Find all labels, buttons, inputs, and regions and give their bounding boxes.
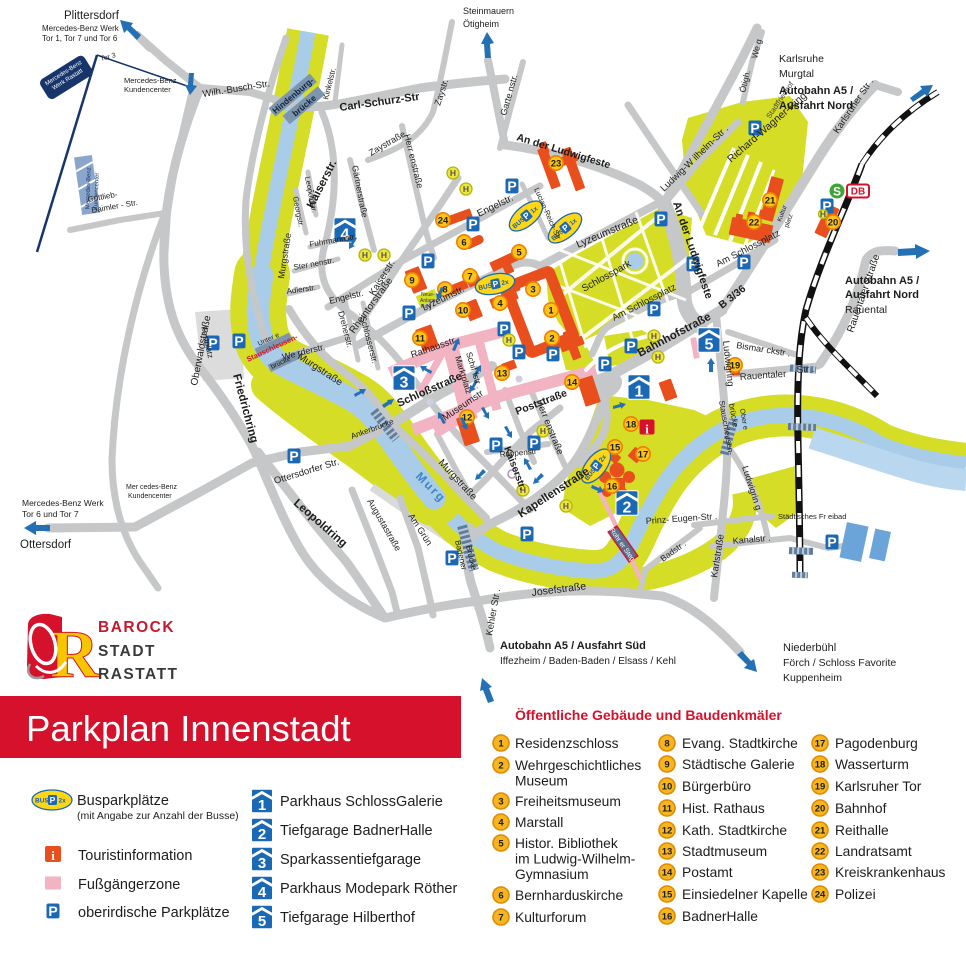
svg-text:Karlsruhe: Karlsruhe (779, 53, 824, 65)
svg-text:Gymnasium: Gymnasium (515, 867, 589, 882)
svg-text:9: 9 (664, 759, 669, 770)
svg-text:14: 14 (567, 377, 578, 388)
svg-text:Marstall: Marstall (515, 815, 563, 830)
svg-text:17: 17 (815, 738, 826, 749)
svg-text:Niederbühl: Niederbühl (783, 642, 836, 654)
svg-text:Bahnhof: Bahnhof (835, 801, 887, 816)
svg-text:Ausfahrt Nord: Ausfahrt Nord (779, 100, 853, 112)
svg-text:Tor 6 und Tor 7: Tor 6 und Tor 7 (22, 509, 79, 519)
svg-text:16: 16 (662, 911, 673, 922)
svg-text:20: 20 (828, 217, 839, 228)
svg-text:8: 8 (664, 738, 669, 749)
svg-text:P: P (600, 356, 609, 372)
svg-text:P: P (514, 344, 523, 360)
svg-text:BAROCK: BAROCK (98, 619, 175, 636)
svg-text:Mercedes-Benz Werk: Mercedes-Benz Werk (22, 498, 104, 508)
svg-text:Stadtmuseum: Stadtmuseum (682, 844, 767, 859)
svg-text:S: S (833, 185, 841, 199)
svg-text:18: 18 (815, 759, 826, 770)
svg-text:BadnerHalle: BadnerHalle (682, 909, 758, 924)
svg-text:Kundencenter: Kundencenter (124, 85, 171, 94)
svg-text:3: 3 (530, 284, 535, 295)
svg-text:Str .: Str . (796, 364, 814, 376)
svg-text:7: 7 (467, 271, 472, 282)
svg-text:Postamt: Postamt (682, 865, 733, 880)
svg-text:22: 22 (815, 846, 826, 857)
svg-text:Mercedes-Benz Werk: Mercedes-Benz Werk (42, 24, 120, 33)
svg-text:P: P (404, 305, 413, 321)
svg-text:14: 14 (662, 867, 673, 878)
svg-text:4: 4 (258, 884, 267, 901)
svg-text:Mercedes-Benz: Mercedes-Benz (124, 76, 177, 85)
svg-text:Histor. Bibliothek: Histor. Bibliothek (515, 836, 618, 851)
svg-text:Parkhaus Modepark Röther: Parkhaus Modepark Röther (280, 881, 457, 897)
svg-text:10: 10 (458, 305, 469, 316)
svg-text:2: 2 (549, 333, 554, 344)
svg-text:Reithalle: Reithalle (835, 823, 889, 838)
svg-text:im Ludwig-Wilhelm-: im Ludwig-Wilhelm- (515, 852, 635, 867)
svg-text:RASTATT: RASTATT (98, 666, 179, 683)
svg-text:Murgtal: Murgtal (779, 68, 814, 80)
svg-text:21: 21 (765, 195, 776, 206)
svg-text:5: 5 (705, 336, 714, 353)
svg-text:Städtische Galerie: Städtische Galerie (682, 757, 795, 772)
svg-text:2: 2 (258, 826, 266, 843)
svg-text:Touristinformation: Touristinformation (78, 848, 192, 864)
svg-text:Karlsruher Tor: Karlsruher Tor (835, 779, 922, 794)
svg-text:Rauental: Rauental (845, 304, 887, 316)
svg-text:15: 15 (610, 442, 621, 453)
svg-text:Museum: Museum (515, 774, 568, 789)
svg-text:23: 23 (551, 158, 562, 169)
svg-text:Autobahn A5 /: Autobahn A5 / (779, 85, 853, 97)
svg-text:Wehrgeschichtliches: Wehrgeschichtliches (515, 758, 641, 773)
svg-text:Parkplan Innenstadt: Parkplan Innenstadt (26, 708, 351, 749)
svg-text:P: P (447, 550, 456, 566)
svg-text:6: 6 (461, 237, 466, 248)
svg-text:Iffezheim / Baden-Baden / Elsa: Iffezheim / Baden-Baden / Elsass / Kehl (500, 656, 676, 667)
svg-text:2: 2 (623, 499, 632, 516)
svg-text:11: 11 (415, 333, 426, 344)
svg-text:Autobahn A5 /: Autobahn A5 / (845, 275, 919, 287)
svg-text:Städtisches Fr eibad: Städtisches Fr eibad (778, 512, 846, 521)
svg-text:P: P (626, 338, 635, 354)
svg-text:23: 23 (815, 867, 826, 878)
svg-text:Kreiskrankenhaus: Kreiskrankenhaus (835, 865, 946, 880)
svg-text:18: 18 (626, 419, 637, 430)
svg-text:P: P (827, 534, 836, 550)
svg-text:20: 20 (815, 803, 826, 814)
svg-text:Mer cedes-Benz: Mer cedes-Benz (126, 484, 177, 491)
svg-text:1: 1 (498, 738, 504, 749)
svg-text:2: 2 (498, 760, 503, 771)
svg-text:10: 10 (662, 781, 673, 792)
svg-text:19: 19 (815, 781, 826, 792)
svg-text:13: 13 (662, 846, 673, 857)
svg-text:22: 22 (749, 217, 760, 228)
svg-text:Freiheitsmuseum: Freiheitsmuseum (515, 794, 621, 809)
svg-text:Residenzschloss: Residenzschloss (515, 736, 619, 751)
svg-text:P: P (50, 795, 56, 805)
svg-text:13: 13 (497, 368, 508, 379)
svg-text:i: i (645, 422, 649, 437)
svg-text:H: H (506, 335, 512, 345)
svg-text:15: 15 (662, 889, 673, 900)
svg-text:11: 11 (662, 803, 673, 814)
svg-text:5: 5 (516, 247, 522, 258)
svg-text:H: H (362, 250, 368, 260)
svg-text:21: 21 (815, 825, 826, 836)
svg-text:Wasserturm: Wasserturm (835, 757, 909, 772)
svg-text:4: 4 (498, 817, 504, 828)
svg-text:3: 3 (258, 855, 266, 872)
svg-text:16: 16 (607, 481, 618, 492)
svg-text:5: 5 (498, 838, 504, 849)
svg-text:Polizei: Polizei (835, 887, 876, 902)
svg-text:Busparkplätze: Busparkplätze (77, 793, 169, 809)
svg-text:Tor 1, Tor 7 und Tor 6: Tor 1, Tor 7 und Tor 6 (42, 34, 118, 43)
svg-text:Evang. Stadtkirche: Evang. Stadtkirche (682, 736, 798, 751)
svg-text:P: P (423, 253, 432, 269)
svg-text:H: H (820, 209, 826, 219)
svg-text:STADT: STADT (98, 643, 156, 660)
svg-text:P: P (48, 903, 57, 919)
svg-text:9: 9 (409, 275, 414, 286)
svg-text:1: 1 (258, 797, 266, 814)
svg-text:Tiefgarage BadnerHalle: Tiefgarage BadnerHalle (280, 823, 433, 839)
svg-text:R: R (50, 616, 100, 692)
svg-text:P: P (468, 216, 477, 232)
svg-text:24: 24 (438, 215, 449, 226)
svg-text:Kuppenheim: Kuppenheim (783, 672, 842, 684)
svg-text:Autobahn A5 / Ausfahrt Süd: Autobahn A5 / Ausfahrt Süd (500, 640, 646, 652)
svg-text:DB: DB (851, 187, 865, 198)
svg-text:Kundencenter: Kundencenter (128, 493, 172, 500)
svg-text:4: 4 (497, 298, 503, 309)
svg-text:Kath. Stadtkirche: Kath. Stadtkirche (682, 823, 787, 838)
svg-text:7: 7 (498, 912, 503, 923)
svg-text:3: 3 (400, 374, 409, 391)
svg-text:Bernharduskirche: Bernharduskirche (515, 888, 623, 903)
svg-text:Tiefgarage Hilberthof: Tiefgarage Hilberthof (280, 910, 416, 926)
svg-text:6: 6 (498, 890, 503, 901)
svg-text:Parkhaus SchlossGalerie: Parkhaus SchlossGalerie (280, 794, 443, 810)
svg-text:Ottersdorf: Ottersdorf (20, 539, 72, 551)
svg-text:Ötigheim: Ötigheim (463, 19, 499, 29)
svg-text:BUS: BUS (35, 798, 49, 805)
svg-text:5: 5 (258, 913, 266, 930)
svg-text:H: H (463, 184, 469, 194)
svg-text:Park: Park (421, 304, 432, 310)
svg-text:Bürgerbüro: Bürgerbüro (682, 779, 751, 794)
svg-text:Kulturforum: Kulturforum (515, 910, 586, 925)
svg-text:1: 1 (548, 305, 554, 316)
svg-text:oberirdische Parkplätze: oberirdische Parkplätze (78, 905, 230, 921)
svg-text:P: P (656, 211, 665, 227)
svg-text:H: H (655, 352, 661, 362)
svg-text:Ausfahrt Nord: Ausfahrt Nord (845, 289, 919, 301)
svg-text:Pagodenburg: Pagodenburg (835, 736, 918, 751)
svg-text:i: i (51, 848, 55, 863)
svg-text:P: P (234, 333, 243, 349)
svg-text:(mit Angabe zur Anzahl der Bus: (mit Angabe zur Anzahl der Busse) (77, 810, 239, 822)
svg-text:H: H (381, 250, 387, 260)
svg-text:Landratsamt: Landratsamt (835, 844, 912, 859)
svg-text:Plittersdorf: Plittersdorf (64, 10, 120, 22)
svg-text:24: 24 (815, 889, 826, 900)
svg-text:P: P (522, 526, 531, 542)
svg-text:Hist. Rathaus: Hist. Rathaus (682, 801, 765, 816)
svg-text:3: 3 (498, 796, 503, 807)
svg-text:2x: 2x (59, 798, 67, 805)
svg-text:Sparkassentiefgarage: Sparkassentiefgarage (280, 852, 421, 868)
svg-text:Förch / Schloss Favorite: Förch / Schloss Favorite (783, 657, 896, 669)
svg-text:P: P (507, 178, 516, 194)
svg-text:P: P (548, 346, 557, 362)
svg-text:Öffentliche Gebäude und Bauden: Öffentliche Gebäude und Baudenkmäler (515, 707, 782, 723)
svg-text:H: H (563, 501, 569, 511)
svg-text:P: P (289, 448, 298, 464)
svg-text:17: 17 (638, 449, 649, 460)
svg-text:1: 1 (635, 383, 644, 400)
svg-text:12: 12 (662, 825, 673, 836)
svg-text:Steinmauern: Steinmauern (463, 6, 514, 16)
svg-text:Einsiedelner Kapelle: Einsiedelner Kapelle (682, 887, 808, 902)
svg-text:Fußgängerzone: Fußgängerzone (78, 877, 180, 893)
svg-text:H: H (450, 168, 456, 178)
